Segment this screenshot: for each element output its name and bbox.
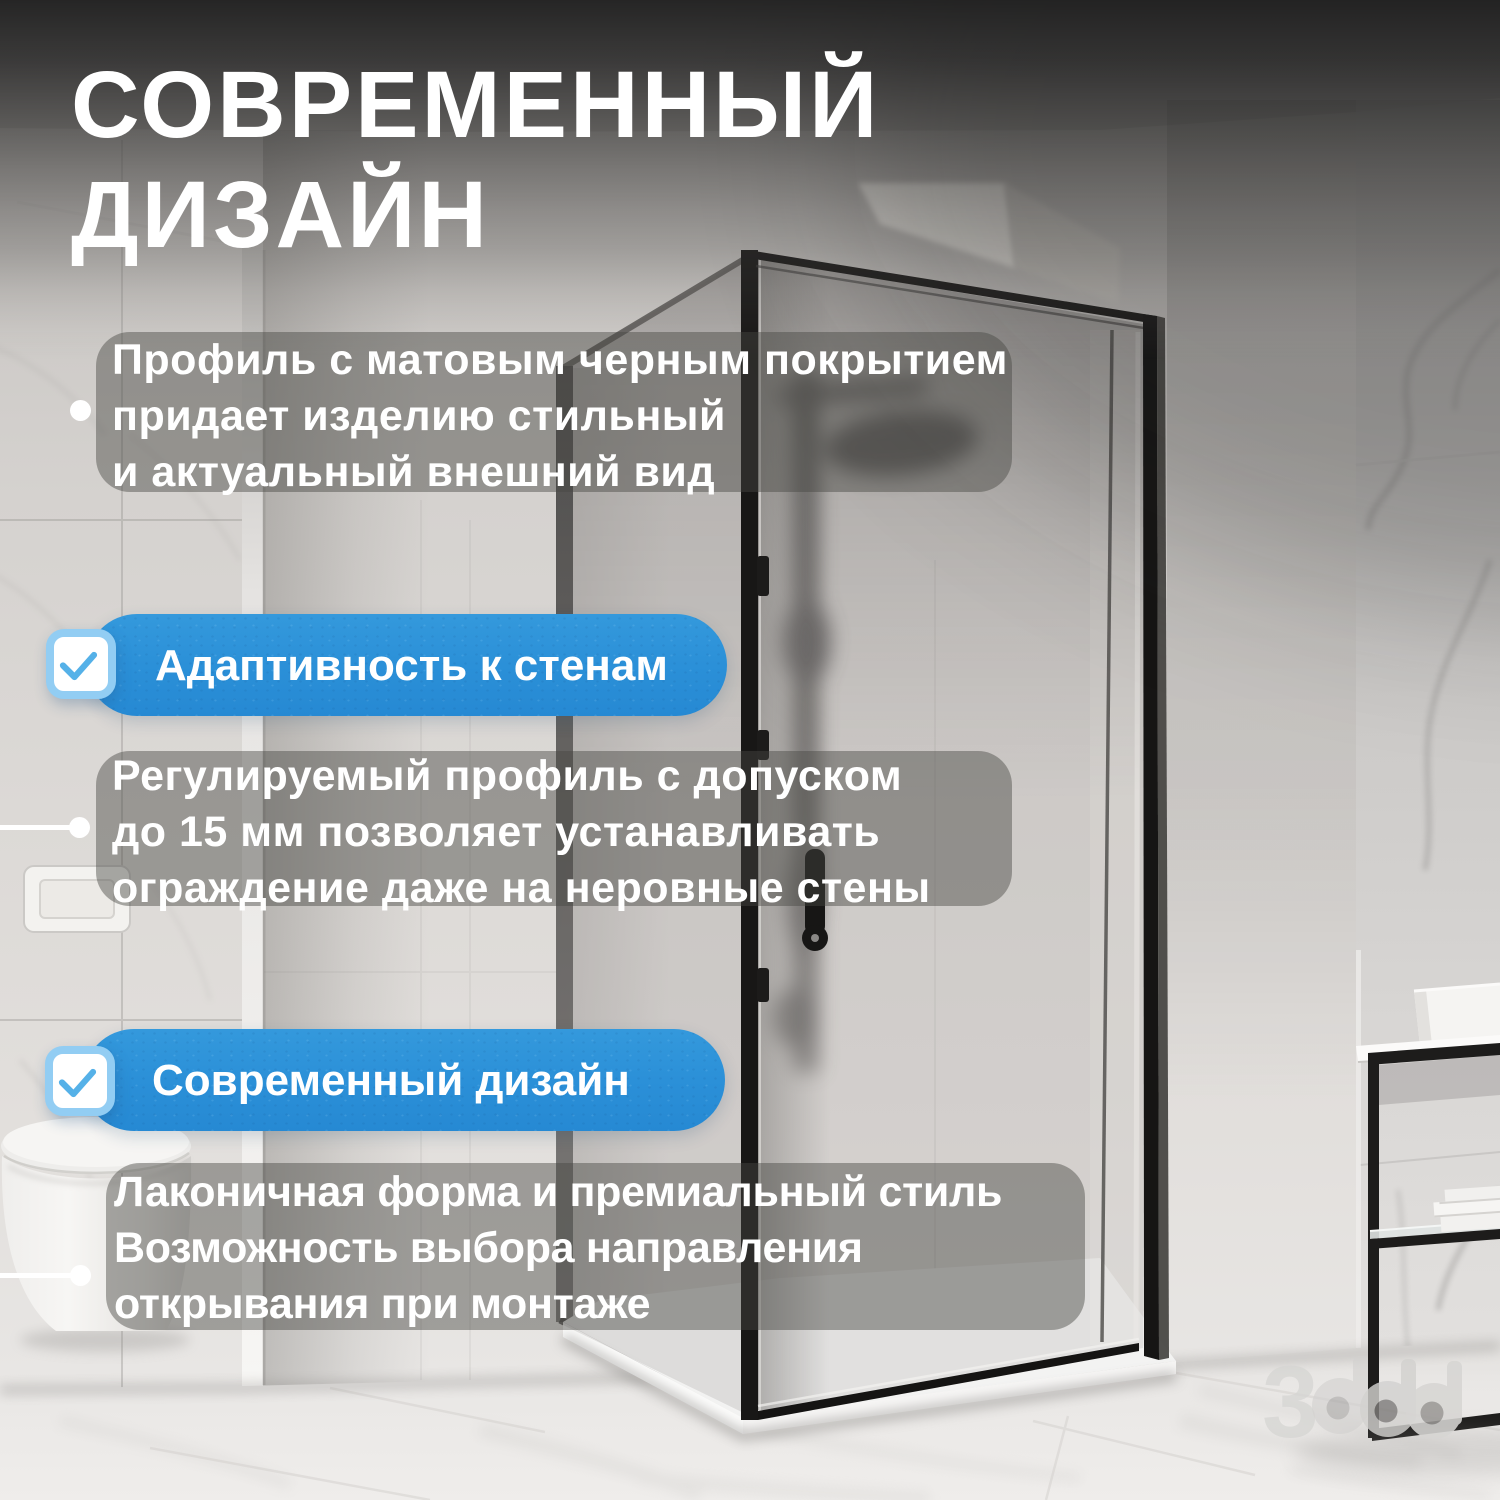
svg-text:3: 3 [1262,1345,1319,1459]
